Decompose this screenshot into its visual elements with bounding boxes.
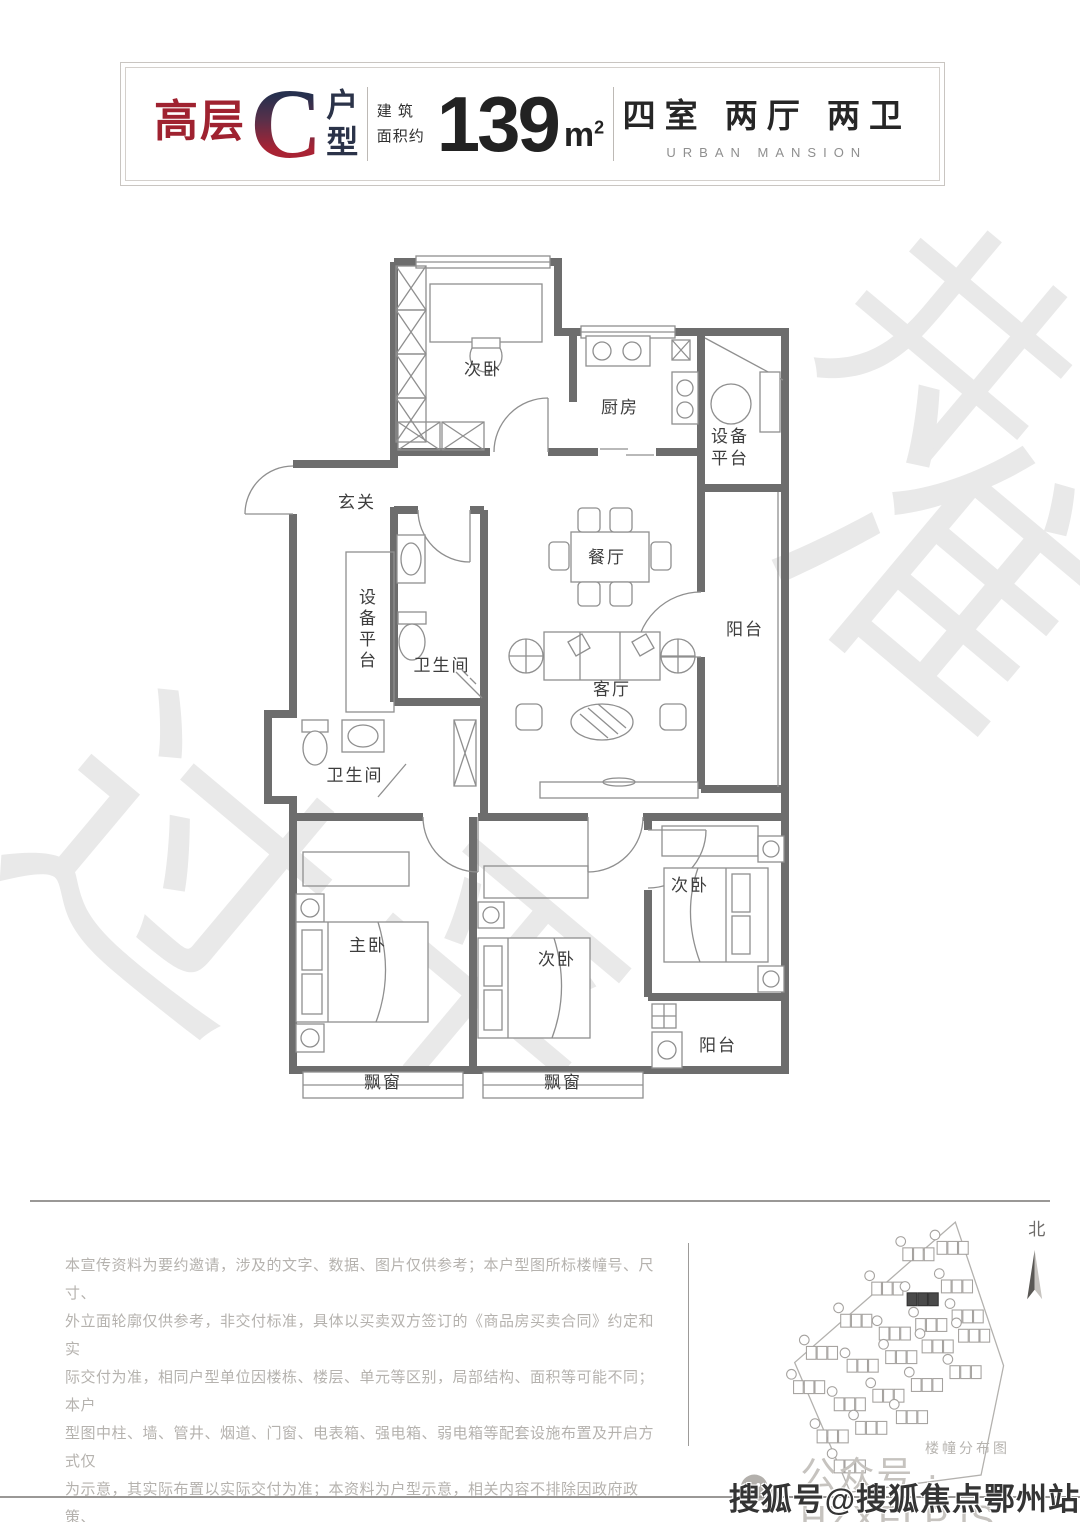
site-building: [865, 1271, 903, 1295]
type-suffix-top: 户: [326, 87, 358, 124]
room-label: 卫生间: [327, 765, 384, 787]
room-label: 飘窗: [544, 1072, 582, 1094]
type-suffix: 户 型: [326, 87, 358, 161]
room-label: 厨房: [601, 397, 639, 419]
disclaimer-text: 本宣传资料为要约邀请，涉及的文字、数据、图片仅供参考；本户型图所标楼幢号、尺寸、…: [65, 1252, 665, 1522]
north-arrow-icon: [1027, 1250, 1042, 1299]
room-label: 餐厅: [588, 547, 626, 569]
room-label: 设备平台: [354, 588, 376, 672]
room-label: 阳台: [726, 619, 764, 641]
type-suffix-bottom: 型: [326, 124, 358, 161]
sohu-watermark: 搜狐号@搜狐焦点鄂州站: [729, 1474, 1080, 1519]
spec-block: 四室 两厅 两卫 URBAN MANSION: [623, 89, 911, 160]
site-building: [889, 1399, 927, 1423]
area-label-line2: 面积约: [377, 124, 425, 150]
site-building: [810, 1419, 848, 1443]
room-label: 设备 平台: [711, 426, 749, 470]
site-building: [866, 1378, 904, 1402]
room-label: 卫生间: [414, 655, 471, 677]
title-box-inner: 高层 C 户 型 建 筑 面积约 139 m2 四室 两厅 两卫 URBAN M…: [125, 67, 940, 181]
disclaimer-line: 际交付为准，相同户型单位因楼栋、楼层、单元等区别，局部结构、面积等可能不同；本户: [65, 1364, 665, 1420]
site-building: [827, 1387, 865, 1411]
header-divider-2: [613, 87, 614, 161]
room-spec: 四室 两厅 两卫: [623, 89, 911, 137]
type-name-block: 高层 C 户 型: [154, 79, 358, 169]
area-unit: m2: [564, 116, 604, 155]
north-label: 北: [1028, 1219, 1045, 1239]
site-building: [934, 1269, 972, 1293]
room-spec-en: URBAN MANSION: [666, 145, 867, 160]
site-building: [849, 1410, 887, 1434]
site-building-highlighted: [900, 1282, 938, 1306]
site-building: [943, 1354, 981, 1378]
site-building: [787, 1369, 825, 1393]
room-label: 主卧: [349, 935, 387, 957]
area-block: 建 筑 面积约 139 m2: [377, 85, 604, 163]
site-building: [879, 1339, 917, 1363]
site-buildings: [787, 1230, 990, 1473]
divider-vertical: [688, 1243, 689, 1446]
site-building: [915, 1329, 953, 1353]
site-building: [904, 1367, 942, 1391]
disclaimer-line: 本宣传资料为要约邀请，涉及的文字、数据、图片仅供参考；本户型图所标楼幢号、尺寸、: [65, 1252, 665, 1308]
flyer-page: 井准过平 高层 C 户 型 建 筑 面积约 139 m2: [0, 0, 1080, 1522]
disclaimer-line: 外立面轮廓仅供参考，非交付标准，具体以买卖双方签订的《商品房买卖合同》约定和实: [65, 1308, 665, 1364]
room-label: 次卧: [538, 949, 576, 971]
floor-plan: 次卧厨房设备 平台玄关餐厅阳台设备平台卫生间客厅卫生间主卧次卧次卧阳台飘窗飘窗: [258, 252, 798, 1107]
disclaimer-line: 为示意，其实际布置以实际交付为准；本资料为户型示意，相关内容不排除因政府政策、: [65, 1476, 665, 1522]
site-building: [840, 1348, 878, 1372]
series-label: 高层: [154, 85, 246, 149]
room-label: 次卧: [671, 875, 709, 897]
divider-top: [30, 1200, 1050, 1202]
room-label: 次卧: [464, 359, 502, 381]
room-label: 玄关: [338, 492, 376, 514]
room-label: 飘窗: [364, 1072, 402, 1094]
title-box: 高层 C 户 型 建 筑 面积约 139 m2 四室 两厅 两卫 URBAN M…: [120, 62, 945, 186]
floor-plan-drawing: [258, 252, 798, 1107]
disclaimer-line: 型图中柱、墙、管井、烟道、门窗、电表箱、强电箱、弱电箱等配套设施布置及开启方式仅: [65, 1420, 665, 1476]
site-building: [872, 1316, 910, 1340]
header-divider-1: [367, 87, 368, 161]
site-building: [930, 1230, 968, 1254]
site-building: [945, 1299, 983, 1323]
site-building: [896, 1237, 934, 1261]
watermark-glyph: 井: [781, 186, 1080, 524]
type-letter: C: [250, 79, 322, 169]
area-label: 建 筑 面积约: [377, 99, 425, 150]
room-label: 阳台: [699, 1035, 737, 1057]
site-building: [909, 1307, 947, 1331]
site-building: [799, 1335, 837, 1359]
room-label: 客厅: [593, 679, 631, 701]
area-label-line1: 建 筑: [377, 99, 425, 125]
area-value: 139: [437, 85, 558, 163]
